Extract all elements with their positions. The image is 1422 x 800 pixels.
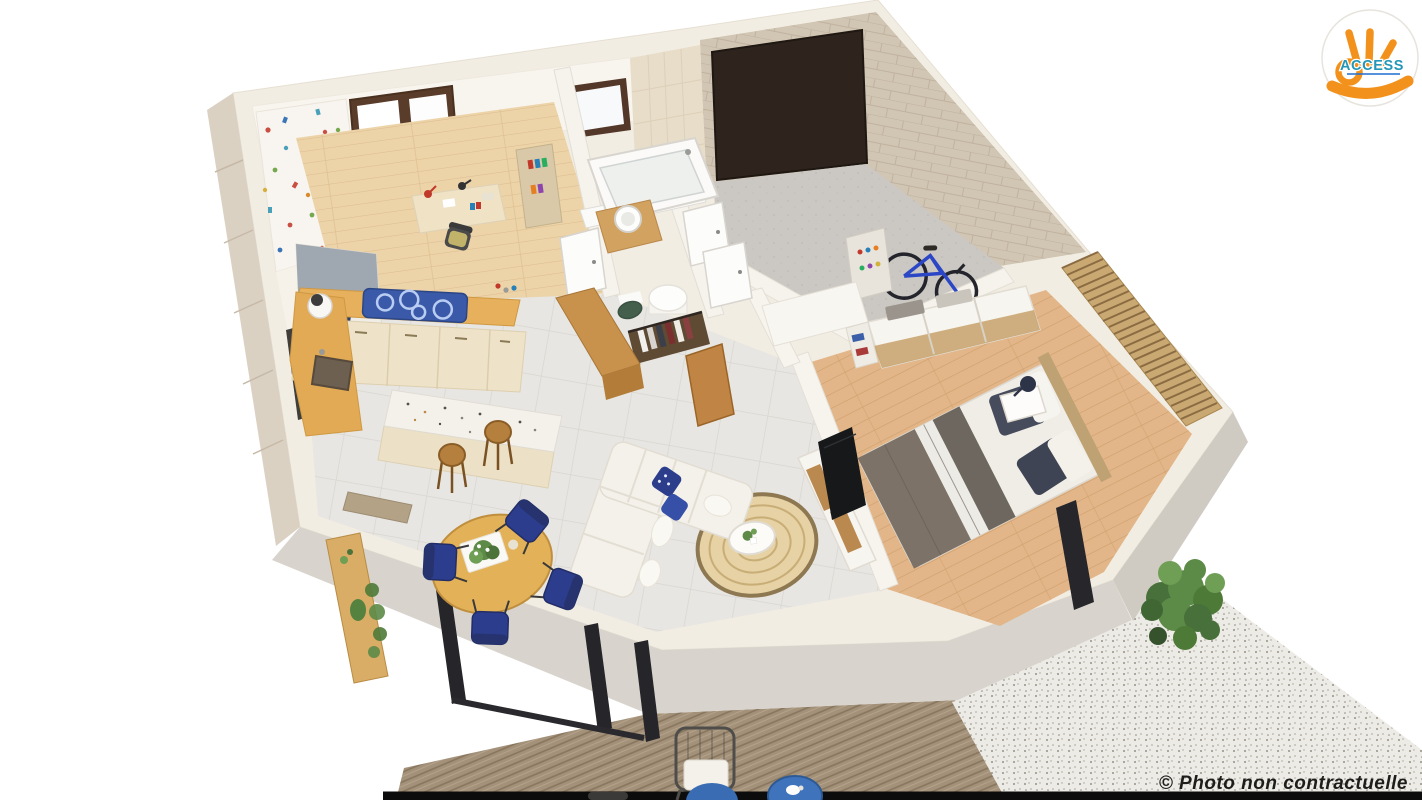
photo-watermark: © Photo non contractuelle bbox=[1159, 773, 1408, 794]
kitchen-sink bbox=[312, 356, 352, 390]
access-logo: ACCESS bbox=[1322, 10, 1418, 106]
floorplan-photo-render: © Photo non contractuelle ACCESS bbox=[0, 0, 1422, 800]
render-canvas: © Photo non contractuelle ACCESS bbox=[0, 0, 1422, 800]
dark-chair-fragment bbox=[588, 792, 628, 800]
pouf bbox=[649, 285, 687, 314]
garage-door bbox=[712, 30, 867, 180]
coffee-machine bbox=[308, 294, 332, 318]
logo-wordmark: ACCESS bbox=[1340, 58, 1404, 74]
induction-hob bbox=[362, 288, 467, 322]
bedside-lamp bbox=[1020, 376, 1036, 392]
faucet bbox=[319, 349, 325, 355]
